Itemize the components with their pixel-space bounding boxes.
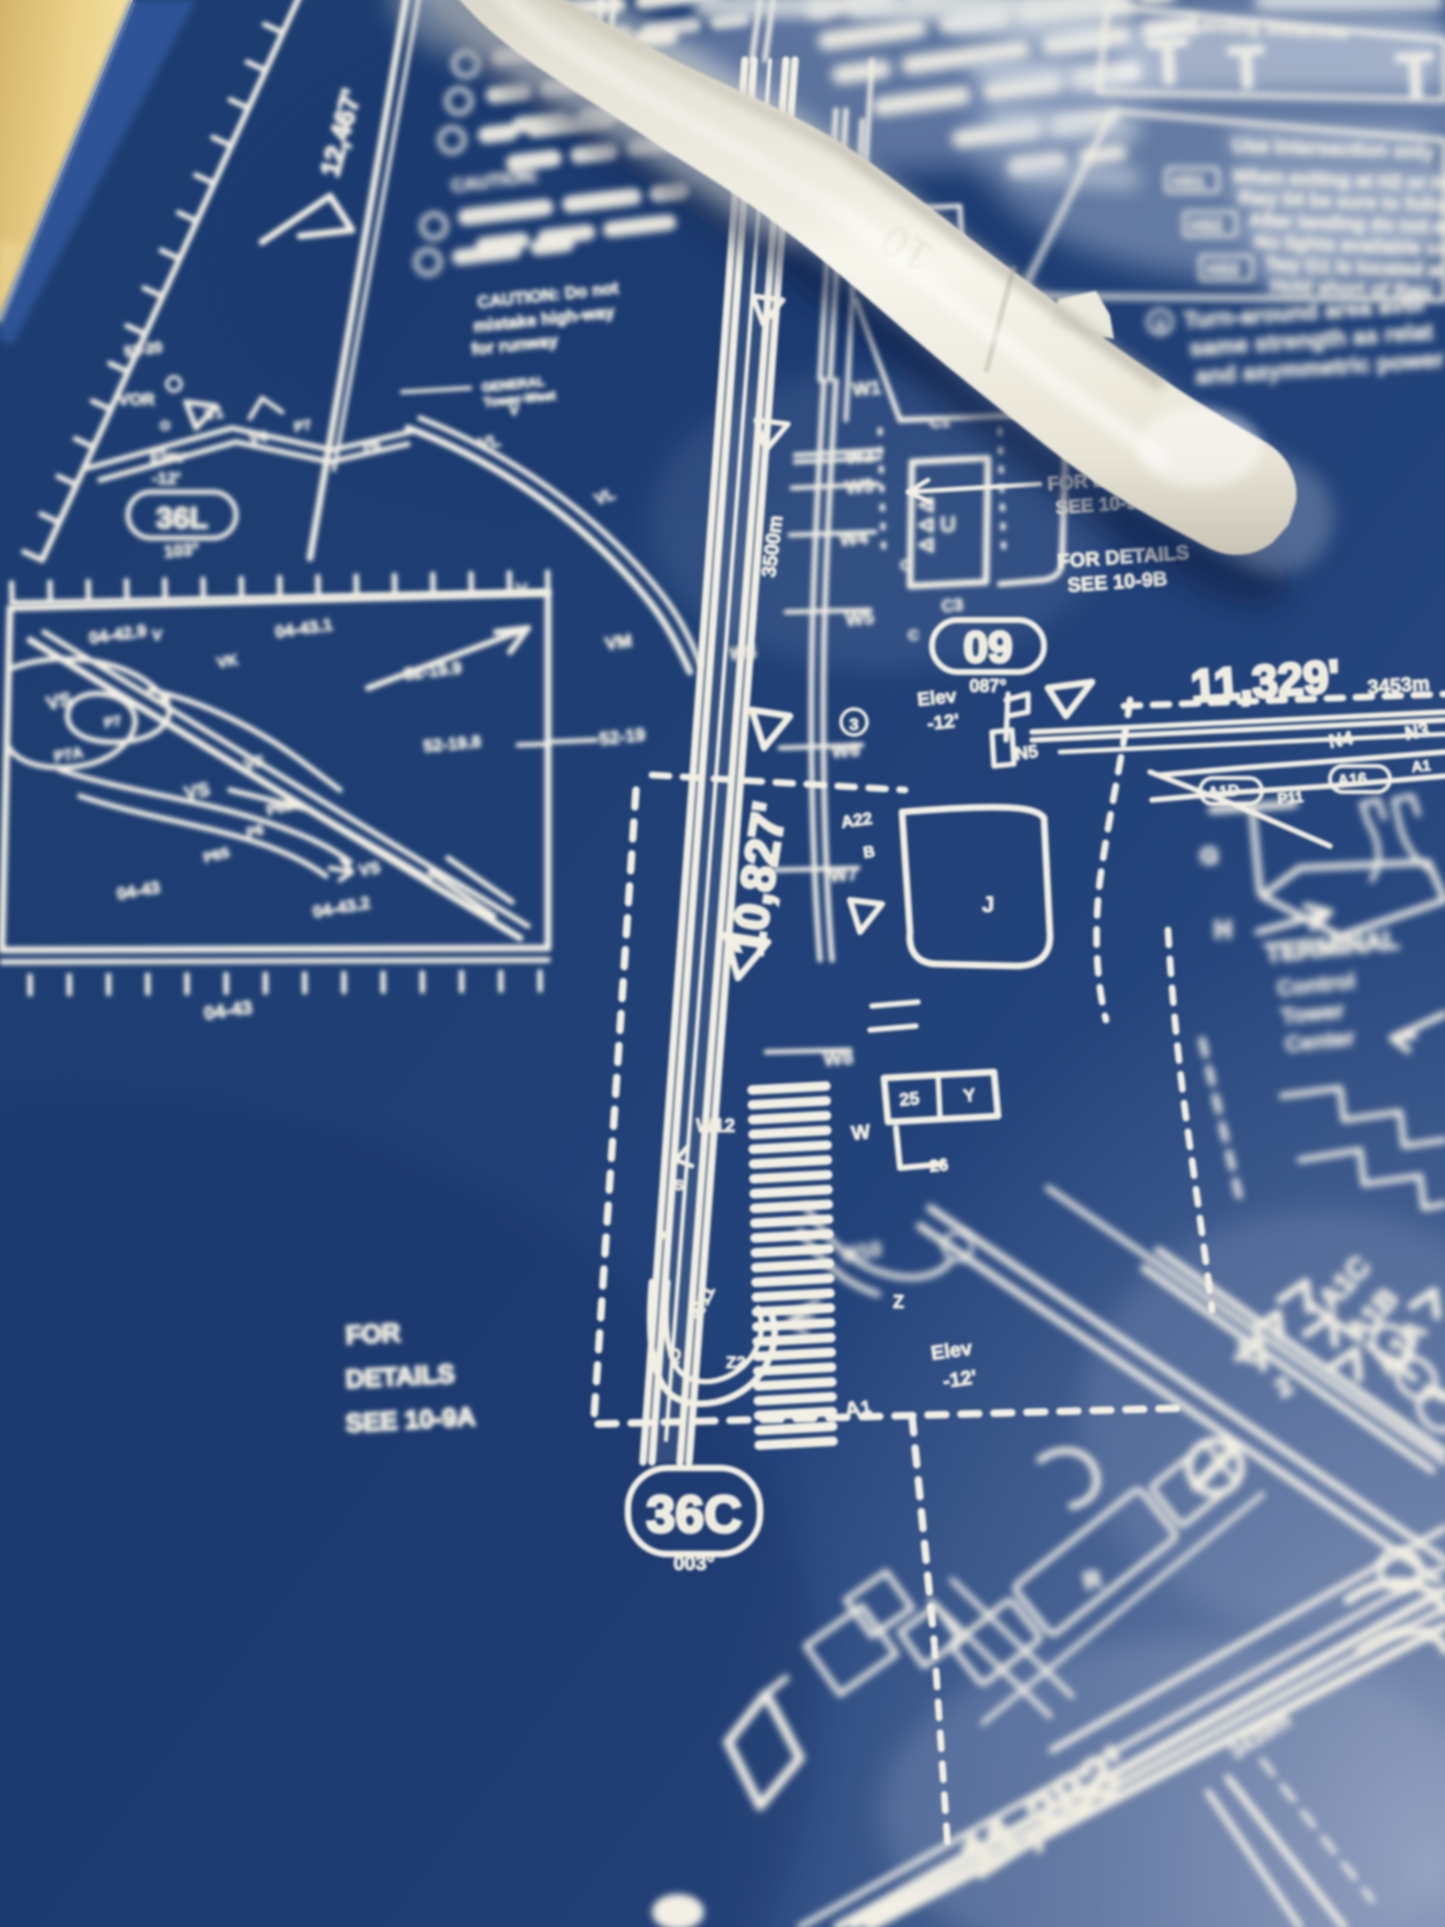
svg-text:U: U [940, 512, 956, 537]
svg-text:N4: N4 [1327, 728, 1355, 753]
svg-text:-12': -12' [152, 469, 181, 488]
svg-text:Elev: Elev [916, 686, 957, 711]
svg-text:P6: P6 [362, 436, 382, 455]
svg-text:36L: 36L [156, 502, 208, 535]
svg-text:O: O [160, 418, 170, 433]
svg-text:N3: N3 [1403, 720, 1431, 745]
svg-text:G: G [1200, 843, 1219, 870]
svg-text:VOR: VOR [118, 390, 155, 409]
svg-text:P7: P7 [293, 416, 313, 435]
svg-text:W1: W1 [852, 378, 883, 401]
svg-text:P7: P7 [103, 712, 123, 731]
svg-text:C1: C1 [929, 413, 951, 432]
svg-text:11,329': 11,329' [1189, 650, 1341, 712]
svg-text:103°: 103° [163, 540, 200, 562]
svg-text:3: 3 [1156, 317, 1165, 334]
svg-text:09: 09 [964, 623, 1013, 672]
svg-text:A1: A1 [1411, 757, 1432, 776]
svg-text:VM: VM [604, 630, 634, 654]
svg-text:C: C [900, 557, 911, 574]
svg-text:H: H [1214, 916, 1232, 944]
svg-text:W7: W7 [829, 864, 859, 887]
svg-text:T: T [1395, 40, 1435, 109]
svg-text:3453m: 3453m [1367, 673, 1431, 699]
svg-text:J: J [982, 892, 994, 917]
svg-text:B: B [160, 693, 171, 710]
svg-text:W5: W5 [729, 642, 758, 664]
svg-text:Y: Y [962, 1085, 976, 1106]
svg-text:X: X [660, 1227, 670, 1244]
svg-text:003°: 003° [673, 1553, 714, 1575]
svg-text:25: 25 [898, 1088, 920, 1110]
svg-text:V1: V1 [204, 404, 225, 424]
svg-text:36C: 36C [646, 1486, 741, 1544]
svg-text:W3: W3 [845, 476, 875, 499]
svg-text:V4: V4 [248, 428, 270, 448]
svg-text:-12': -12' [942, 1366, 978, 1392]
svg-text:087°: 087° [969, 676, 1006, 696]
svg-text:W: W [850, 1121, 871, 1145]
svg-text:T: T [1227, 34, 1266, 101]
svg-text:S: S [674, 1177, 684, 1194]
svg-text:V: V [152, 627, 162, 644]
svg-text:W8: W8 [823, 1046, 855, 1071]
svg-text:Z: Z [893, 1292, 904, 1312]
svg-text:W12: W12 [696, 1116, 735, 1137]
svg-text:N5: N5 [1014, 741, 1040, 764]
svg-text:W2: W2 [845, 446, 875, 469]
svg-text:FOR: FOR [345, 1317, 402, 1350]
svg-text:V: V [509, 402, 519, 419]
svg-text:C3: C3 [941, 595, 964, 616]
svg-text:T: T [1147, 24, 1190, 98]
svg-text:W5: W5 [845, 608, 876, 631]
svg-text:C: C [908, 627, 919, 644]
svg-text:Q: Q [668, 1345, 681, 1364]
svg-text:DETAILS: DETAILS [345, 1358, 456, 1394]
svg-text:3: 3 [849, 715, 858, 734]
svg-text:-12': -12' [926, 711, 960, 735]
svg-text:A16: A16 [1337, 770, 1368, 790]
svg-text:VK: VK [216, 652, 240, 672]
svg-text:B: B [862, 844, 876, 862]
svg-text:HS2: HS2 [1190, 216, 1223, 235]
svg-text:Z2: Z2 [726, 1353, 746, 1372]
svg-text:HS1: HS1 [1172, 172, 1205, 191]
svg-text:W6: W6 [831, 740, 861, 763]
svg-text:W4: W4 [839, 528, 870, 551]
svg-text:HS3: HS3 [1206, 260, 1239, 279]
